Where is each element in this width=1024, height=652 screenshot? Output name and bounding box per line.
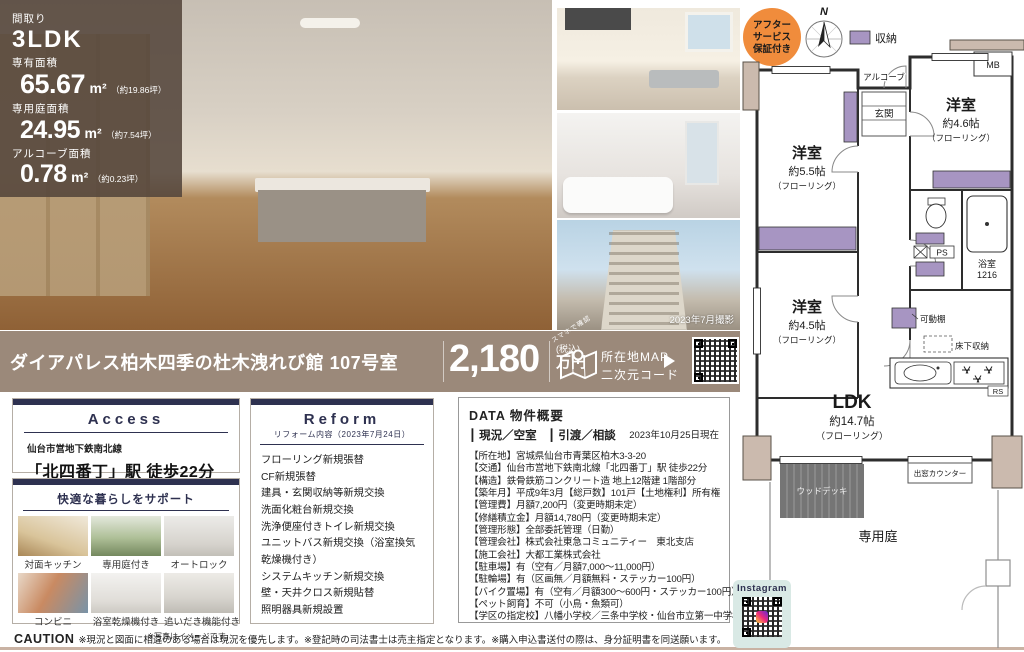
kadodana-label: 可動棚 [920,314,946,324]
support-box: 快適な暮らしをサポート 対面キッチン 専用庭付き オートロック コンビニ 浴室乾… [12,478,240,624]
svg-text:洋室: 洋室 [792,144,822,162]
data-rows: 【所在地】宮城県仙台市青葉区柏木3-3-20 【交通】仙台市営地下鉄南北線「北四… [469,451,719,624]
demado-label: 出窓カウンター [914,468,967,478]
svg-text:約14.7帖: 約14.7帖 [829,414,874,428]
map-icon [559,349,599,381]
list-item: 浴室乾燥機付き [91,573,161,628]
alcove-area-label: アルコーブ面積 [12,149,172,160]
qr-finder [742,597,751,606]
bathtub [563,177,673,213]
ceiling-light [300,18,360,28]
wood-deck: ウッドデッキ [780,464,864,518]
qr-finder [728,339,737,348]
support-photo-dryer [91,573,161,613]
svg-text:（フローリング）: （フローリング） [773,181,841,191]
range-hood [565,8,631,30]
svg-text:玄関: 玄関 [874,108,893,120]
list-item: 建具・玄関収納等新規交換 [261,486,425,503]
table-row: 【駐輪場】有（区画無／月額無料・ステッカー100円） [469,574,719,586]
list-item: システムキッチン新規交換 [261,570,425,587]
reform-subtitle: リフォーム内容（2023年7月24日） [251,429,433,440]
property-name: ダイアパレス柏木四季の杜木洩れび館 107号室 [10,331,398,392]
layout-label: 間取り [12,14,172,25]
washer-ps [914,246,954,258]
support-photo-store [18,573,88,613]
qr-finder [773,597,782,606]
area-value: 65.67 m² （約19.86坪） [12,71,172,98]
list-item: オートロック [164,516,234,571]
svg-text:（フローリング）: （フローリング） [816,430,888,441]
reform-box-topbar [251,399,433,405]
caution-line: CAUTION※現況と図面に相違のある場合は現況を優先します。※登記時の司法書士… [14,632,754,646]
data-status: 2023年10月25日現在 ┃ 現況／空室 ┃ 引渡／相談 [469,427,719,443]
bathroom-photo [557,113,740,218]
support-photo-garden [91,516,161,556]
svg-text:保証付き: 保証付き [752,43,791,55]
price-value: 2,180 [449,338,539,381]
data-title: DATA 物件概要 [469,405,719,424]
svg-text:アフター: アフター [753,19,791,31]
table-row: 【ペット飼育】不可（小鳥・魚類可） [469,599,719,611]
access-title: Access [13,411,239,428]
kitchen-window [685,12,733,52]
alcove-area-value: 0.78 m² （約0.23坪） [12,162,172,187]
reform-title: Reform [251,411,433,428]
sink [649,70,719,88]
qr-finder [694,339,703,348]
svg-text:約5.5帖: 約5.5帖 [788,164,825,178]
list-item: ユニットバス新規交換（浴室換気乾燥機付き） [261,536,425,569]
instagram-qr-code [742,597,782,637]
support-photo-reheat [164,573,234,613]
svg-text:約4.6帖: 約4.6帖 [942,116,979,130]
banner-divider-1 [443,341,444,382]
alcove-label: アルコーブ [863,72,905,82]
svg-text:洋室: 洋室 [792,298,822,316]
svg-text:浴室: 浴室 [978,258,996,269]
list-item: フローリング新規張替 [261,453,425,470]
rs-label: RS [993,387,1003,396]
access-box: Access 仙台市営地下鉄南北線 「北四番丁」駅 徒歩22分 [12,398,240,473]
after-service-badge: アフター サービス 保証付き [743,8,801,66]
area-label: 専有面積 [12,58,172,69]
svg-text:（フローリング）: （フローリング） [927,133,995,143]
toilet [926,198,946,228]
table-row: 【修繕積立金】月額14,780円（変更時期未定） [469,513,719,525]
list-item: 壁・天井クロス新規貼替 [261,586,425,603]
list-item: 対面キッチン [18,516,88,571]
table-row: 【駐車場】有（空有／月額7,000～11,000円） [469,562,719,574]
kitchen-counter-body [258,190,426,242]
svg-text:1216: 1216 [977,270,997,280]
list-item: コンビニ [18,573,88,628]
yukashita-label: 床下収納 [955,341,989,351]
table-row: 【施工会社】大都工業株式会社 [469,550,719,562]
bath-mirror [685,121,719,185]
title-banner: ダイアパレス柏木四季の杜木洩れび館 107号室 2,180 (税込) 万円 所在… [0,331,740,392]
building-balconies [609,232,679,330]
support-photo-kitchen [18,516,88,556]
photo-date-note: 2023年7月撮影 [670,312,734,326]
list-item: 照明器具新規設置 [261,603,425,620]
genkan: 玄関 [862,92,906,136]
data-box: DATA 物件概要 2023年10月25日現在 ┃ 現況／空室 ┃ 引渡／相談 … [458,397,730,623]
reform-rule [260,444,424,445]
mb-label: MB [986,60,1000,70]
instagram-box: Instagram [733,580,791,648]
qr-finder [694,373,703,382]
layout-value: 3LDK [12,28,172,52]
data-date: 2023年10月25日現在 [629,427,719,441]
list-item: CF新規張替 [261,470,425,487]
banner-divider-2 [549,341,550,382]
list-item: 追いだき機能付き [164,573,234,628]
support-title: 快適な暮らしをサポート [23,491,229,511]
spec-overlay: 間取り 3LDK 専有面積 65.67 m² （約19.86坪） 専用庭面積 2… [0,0,182,197]
map-qr-code [692,337,739,384]
table-row: 【所在地】宮城県仙台市青葉区柏木3-3-20 [469,451,719,463]
support-grid: 対面キッチン 専用庭付き オートロック コンビニ 浴室乾燥機付き 追いだき機能付… [13,516,239,630]
access-rule [24,432,227,433]
support-box-topbar [13,479,239,485]
list-item: 洗浄便座付きトイレ新規交換 [261,520,425,537]
reform-box: Reform リフォーム内容（2023年7月24日） フローリング新規張替 CF… [250,398,434,624]
list-item: 洗面化粧台新規交換 [261,503,425,520]
caution-label: CAUTION [14,632,74,646]
floor-plan: アフター サービス 保証付き N 収納 MB [740,0,1024,652]
svg-text:ウッドデッキ: ウッドデッキ [796,486,847,496]
legend-storage: 収納 [850,31,897,45]
garden-label: 専用庭 [858,529,897,544]
table-row: 【交通】仙台市営地下鉄南北線「北四番丁」駅 徒歩22分 [469,463,719,475]
kitchen-photo [557,8,740,110]
svg-text:約4.5帖: 約4.5帖 [788,318,825,332]
table-row: 【築年月】平成9年3月【総戸数】101戸【土地権利】所有権 [469,488,719,500]
svg-text:サービス: サービス [753,31,791,43]
flyer-canvas: 間取り 3LDK 専有面積 65.67 m² （約19.86坪） 専用庭面積 2… [0,0,1024,652]
svg-text:LDK: LDK [832,392,871,413]
table-row: 【管理会社】株式会社東急コミュニティー 東北支店 [469,537,719,549]
garden-area-value: 24.95 m² （約7.54坪） [12,118,172,143]
svg-text:収納: 収納 [875,32,897,45]
compass-icon: N [806,6,842,57]
qr-finder [742,628,751,637]
svg-text:（フローリング）: （フローリング） [773,335,841,345]
access-box-topbar [13,399,239,405]
garden-area-label: 専用庭面積 [12,104,172,115]
table-row: 【管理費】月額7,200円（変更時期未定） [469,500,719,512]
reform-list: フローリング新規張替 CF新規張替 建具・玄関収納等新規交換 洗面化粧台新規交換… [251,451,433,620]
ps-label: PS [936,248,948,258]
table-row: 【管理形態】全部委託管理（日勤） [469,525,719,537]
arrow-right-icon [664,354,675,368]
table-row: 【学区の指定校】八幡小学校／三条中学校・仙台市立第一中学校 [469,611,719,623]
table-row: 【構造】鉄骨鉄筋コンクリート造 地上12階建 1階部分 [469,476,719,488]
support-photo-autolock [164,516,234,556]
svg-text:洋室: 洋室 [946,96,976,114]
instagram-label: Instagram [733,583,791,594]
table-row: 【バイク置場】有（空有／月額300～600円・ステッカー100円） [469,587,719,599]
svg-text:N: N [820,6,829,18]
access-line: 仙台市営地下鉄南北線 [27,441,239,455]
instagram-logo-icon [756,611,768,623]
list-item: 専用庭付き [91,516,161,571]
